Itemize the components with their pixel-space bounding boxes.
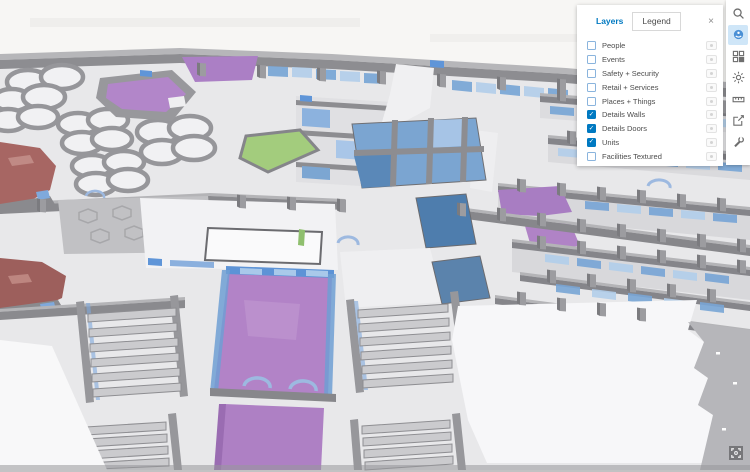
layer-list: People Events Safety + Security Retail +…	[577, 33, 723, 163]
layer-row[interactable]: Safety + Security	[587, 67, 717, 81]
app-window: Layers Legend × People Events Safety + S…	[0, 0, 750, 472]
layer-label: Safety + Security	[602, 69, 659, 78]
layer-row[interactable]: ✓ Details Walls	[587, 108, 717, 122]
unit-blue-cluster	[352, 117, 486, 188]
layer-options-icon[interactable]	[706, 124, 717, 133]
layer-label: Places + Things	[602, 97, 655, 106]
layer-row[interactable]: People	[587, 39, 717, 53]
layer-checkbox[interactable]	[587, 152, 596, 161]
layer-options-icon[interactable]	[706, 55, 717, 64]
layer-row[interactable]: Events	[587, 53, 717, 67]
layer-row[interactable]: ✓ Details Doors	[587, 122, 717, 136]
layer-checkbox[interactable]: ✓	[587, 110, 596, 119]
layer-row[interactable]: Places + Things	[587, 94, 717, 108]
white-plate-center	[140, 198, 338, 270]
daylight-icon[interactable]	[728, 68, 748, 88]
layer-row[interactable]: ✓ Units	[587, 136, 717, 150]
close-icon[interactable]: ×	[703, 16, 719, 27]
layer-options-icon[interactable]	[706, 138, 717, 147]
layer-options-icon[interactable]	[706, 110, 717, 119]
attribution-expand-icon[interactable]	[729, 446, 743, 460]
unit-purple-top-strip	[182, 56, 258, 82]
layer-label: Details Walls	[602, 110, 645, 119]
layer-checkbox[interactable]	[587, 97, 596, 106]
layer-options-icon[interactable]	[706, 83, 717, 92]
layer-options-icon[interactable]	[706, 69, 717, 78]
layers-panel: Layers Legend × People Events Safety + S…	[577, 5, 723, 166]
layer-row[interactable]: Facilities Textured	[587, 149, 717, 163]
share-icon[interactable]	[728, 111, 748, 131]
tools-icon[interactable]	[728, 132, 748, 152]
layer-label: Retail + Services	[602, 83, 658, 92]
layer-label: People	[602, 41, 625, 50]
panel-tabs: Layers Legend ×	[577, 5, 723, 33]
unit-purple-atrium	[210, 266, 336, 402]
tab-legend[interactable]: Legend	[632, 12, 680, 31]
measure-icon[interactable]	[728, 89, 748, 109]
layer-checkbox[interactable]	[587, 83, 596, 92]
layer-checkbox[interactable]	[587, 69, 596, 78]
search-icon[interactable]	[728, 3, 748, 23]
layer-label: Events	[602, 55, 625, 64]
layers-globe-icon[interactable]	[728, 25, 748, 45]
unit-purple-lower	[214, 404, 324, 470]
layer-options-icon[interactable]	[706, 152, 717, 161]
layer-options-icon[interactable]	[706, 41, 717, 50]
attribution-bar	[0, 465, 750, 472]
layer-options-icon[interactable]	[706, 97, 717, 106]
layer-label: Details Doors	[602, 124, 647, 133]
tab-layers[interactable]: Layers	[587, 13, 632, 30]
layer-checkbox[interactable]	[587, 55, 596, 64]
layer-checkbox[interactable]: ✓	[587, 138, 596, 147]
layer-row[interactable]: Retail + Services	[587, 80, 717, 94]
scene-toolbar	[726, 0, 750, 165]
basemap-icon[interactable]	[728, 46, 748, 66]
layer-label: Facilities Textured	[602, 152, 662, 161]
white-plate-bottom-right	[452, 300, 713, 463]
layer-checkbox[interactable]	[587, 41, 596, 50]
layer-checkbox[interactable]: ✓	[587, 124, 596, 133]
layer-label: Units	[602, 138, 619, 147]
